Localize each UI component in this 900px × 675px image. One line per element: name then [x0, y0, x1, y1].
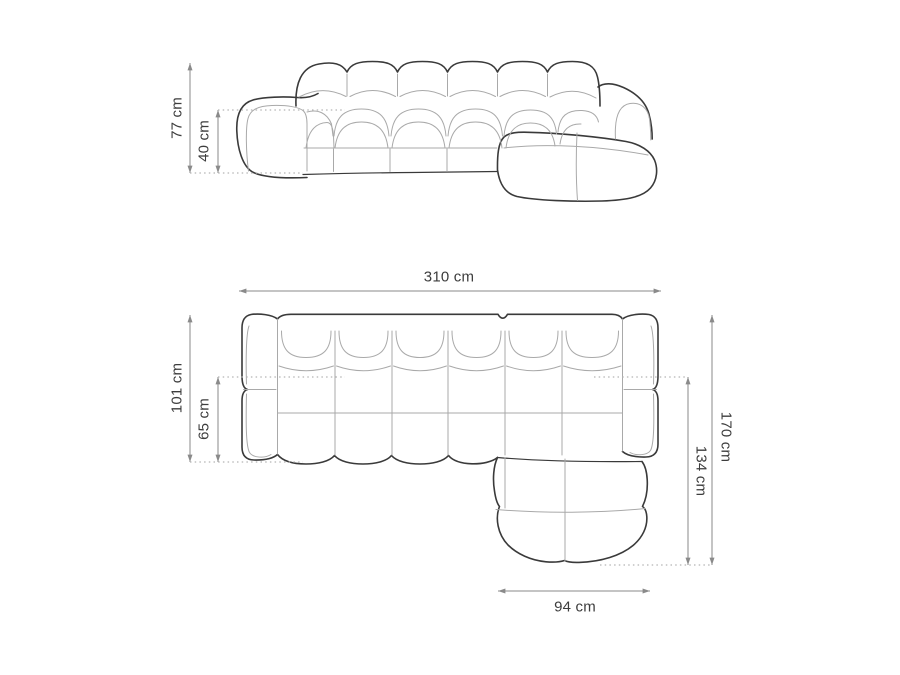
plan-back-edge — [278, 314, 623, 319]
dim-label-overall-width: 310 cm — [424, 270, 474, 285]
plan-chaise-seams — [496, 458, 646, 561]
dim-label-body-depth: 101 cm — [170, 363, 185, 413]
dim-label-seat-height: 40 cm — [197, 120, 212, 162]
plan-backrest-front-seams — [279, 366, 621, 371]
plan-armrest-seams — [244, 319, 657, 457]
plan-seat-front-edge — [278, 455, 498, 465]
dim-label-overall-depth: 170 cm — [719, 412, 734, 462]
dimension-annotations — [190, 63, 712, 591]
dim-label-seat-depth: 65 cm — [197, 398, 212, 440]
dim-label-overall-height: 77 cm — [170, 97, 185, 139]
elevation-seat-front-seams — [306, 122, 581, 148]
elevation-chaise-seams — [504, 133, 648, 201]
plan-chaise-top-edge — [498, 458, 643, 462]
front-elevation-drawing — [237, 62, 657, 202]
dim-label-chaise-extent: 134 cm — [694, 446, 709, 496]
top-plan-drawing — [242, 314, 658, 562]
sofa-dimension-diagram: 77 cm 40 cm 310 cm 101 cm 65 cm 170 cm 1… — [0, 0, 900, 675]
elevation-left-armrest-outline — [237, 94, 318, 178]
elevation-seatback-seams — [307, 109, 599, 136]
elevation-base-seams — [304, 148, 497, 172]
elevation-backrest-seams — [299, 74, 596, 98]
elevation-base-line — [303, 172, 497, 175]
sofa-line-drawing — [0, 0, 900, 675]
dim-label-chaise-width: 94 cm — [554, 600, 596, 615]
plan-grid-verticals — [335, 331, 562, 455]
plan-backrest-cushion-seams — [282, 331, 619, 358]
elevation-right-armrest-outline — [598, 84, 652, 139]
